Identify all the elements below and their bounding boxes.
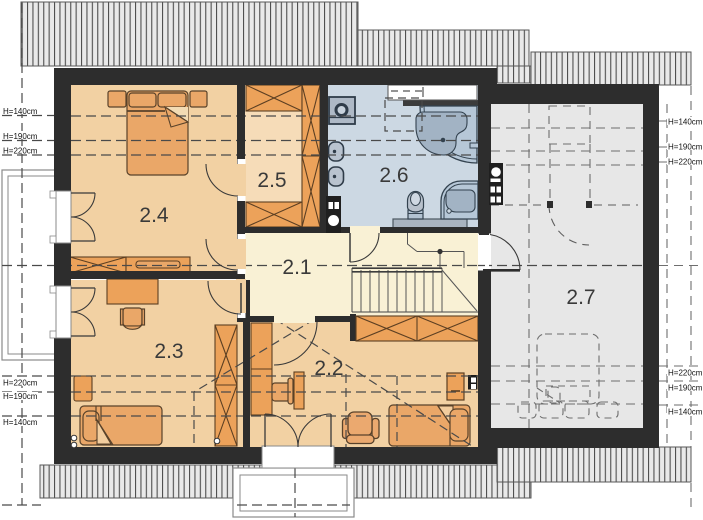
svg-text:2.4: 2.4 (139, 204, 169, 227)
svg-text:H=140cm: H=140cm (668, 408, 703, 417)
svg-text:H=190cm: H=190cm (668, 143, 703, 152)
svg-text:H=220cm: H=220cm (3, 147, 38, 156)
svg-text:2.3: 2.3 (154, 340, 183, 363)
svg-text:H=190cm: H=190cm (668, 384, 703, 393)
svg-text:H=220cm: H=220cm (668, 158, 703, 167)
svg-text:H=140cm: H=140cm (3, 107, 38, 116)
svg-text:H=220cm: H=220cm (668, 369, 703, 378)
svg-text:2.6: 2.6 (379, 164, 408, 187)
svg-text:H=190cm: H=190cm (3, 132, 38, 141)
svg-text:H=140cm: H=140cm (3, 418, 38, 427)
svg-text:2.5: 2.5 (257, 169, 286, 192)
svg-text:2.1: 2.1 (282, 256, 311, 279)
svg-text:2.7: 2.7 (566, 286, 595, 309)
svg-text:H=190cm: H=190cm (3, 392, 38, 401)
svg-text:2.2: 2.2 (314, 357, 343, 380)
svg-text:H=220cm: H=220cm (3, 379, 38, 388)
svg-text:H=140cm: H=140cm (668, 118, 703, 127)
